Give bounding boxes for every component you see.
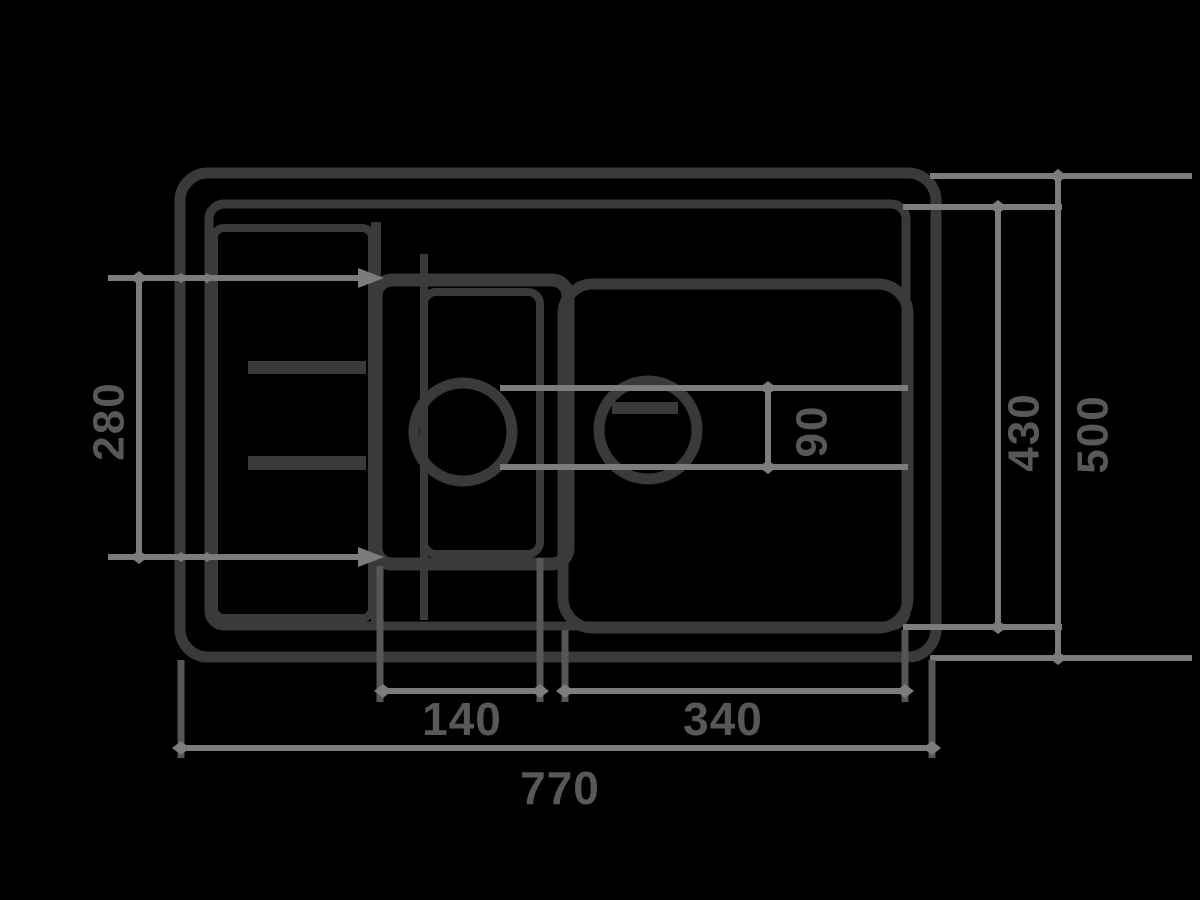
overflow-slot — [612, 402, 678, 414]
drainer-ridge — [248, 361, 366, 374]
drainer-ridge — [248, 456, 366, 470]
main-bowl — [563, 284, 908, 628]
dim-label-total-width: 770 — [520, 762, 600, 814]
dim-label-outer-height: 500 — [1069, 394, 1118, 473]
drawing-canvas: 280 90 430 500 140 — [0, 0, 1200, 900]
dim-label-inner-height: 430 — [1000, 392, 1049, 471]
dim-bottom-widths: 140 340 770 — [172, 558, 941, 814]
dim-label-main-bowl-width: 340 — [683, 693, 763, 745]
half-bowl-inner — [424, 292, 540, 554]
drain-hole-half-bowl — [414, 383, 512, 481]
dim-left-height: 280 — [85, 268, 385, 567]
dim-right-heights: 430 500 — [903, 169, 1192, 665]
sink-dimension-drawing: 280 90 430 500 140 — [0, 0, 1200, 900]
dim-label-drain-diameter: 90 — [788, 405, 837, 458]
dim-label-left-height: 280 — [85, 381, 134, 460]
dim-label-half-bowl-width: 140 — [422, 693, 502, 745]
